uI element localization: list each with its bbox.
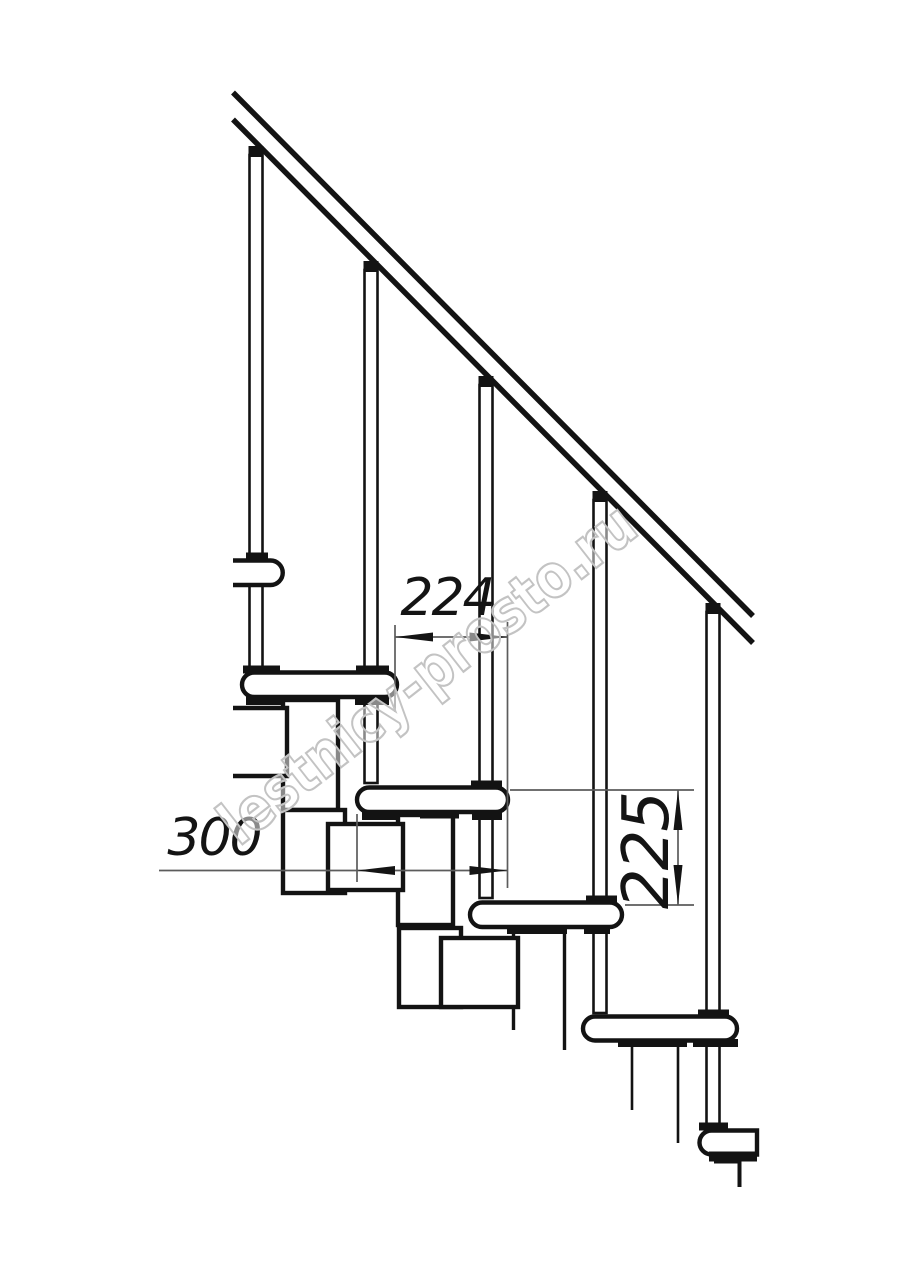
stringer-box-2 xyxy=(328,824,403,890)
stringer-column-4 xyxy=(632,1047,678,1143)
baluster-5-clamp xyxy=(693,1039,738,1047)
staircase-elevation-drawing: 224 300 225 lestnicy-prosto.ru xyxy=(0,0,914,1280)
baluster-5 xyxy=(707,612,720,1125)
baluster-5-foot xyxy=(698,1010,729,1018)
platform-clamp xyxy=(246,553,268,562)
baluster-1 xyxy=(250,155,263,668)
tread-2-mid-clamp xyxy=(420,811,459,819)
tread-5-cut xyxy=(700,1131,758,1155)
baluster-cap-icon xyxy=(249,146,264,157)
baluster-cap-icon xyxy=(479,376,494,387)
tread-4 xyxy=(583,1017,737,1041)
tread-3-module-clamp xyxy=(507,926,567,934)
stringer-cut-line-bottom xyxy=(714,1162,740,1188)
technical-drawing-page: 224 300 225 lestnicy-prosto.ru xyxy=(0,0,914,1280)
baluster-3-foot xyxy=(471,781,502,789)
tread-5-clamp xyxy=(709,1152,757,1162)
tread-4-module-clamp xyxy=(618,1039,687,1047)
baluster-5-base xyxy=(699,1123,728,1131)
upper-platform-nose xyxy=(233,561,283,586)
baluster-cap-icon xyxy=(364,261,379,272)
baluster-1-base xyxy=(243,666,280,674)
dimension-rise-label: 225 xyxy=(610,793,684,909)
baluster-cap-icon xyxy=(706,603,721,614)
tread-3 xyxy=(470,903,622,928)
tread-2-module-clamp xyxy=(362,811,399,820)
stringer-box-3 xyxy=(441,938,518,1007)
baluster-4-clamp xyxy=(584,926,610,934)
tread-1-module-clamp xyxy=(246,696,284,705)
stringer-column-3 xyxy=(514,930,565,1050)
tread-2 xyxy=(357,788,508,813)
baluster-3-clamp xyxy=(472,811,502,820)
